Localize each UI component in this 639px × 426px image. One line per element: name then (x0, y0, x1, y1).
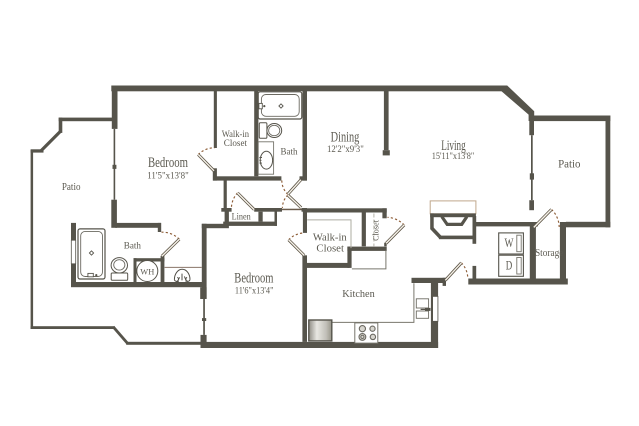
svg-text:11'6"x13'4": 11'6"x13'4" (235, 286, 274, 296)
svg-text:Walk-in: Walk-in (313, 232, 347, 243)
svg-text:15'11"x13'8": 15'11"x13'8" (432, 151, 475, 161)
svg-text:Closet: Closet (370, 220, 380, 241)
svg-text:Closet: Closet (224, 138, 247, 149)
svg-text:12'2"x9'3": 12'2"x9'3" (327, 144, 364, 154)
svg-text:Bedroom: Bedroom (234, 270, 273, 286)
svg-text:Linen: Linen (232, 212, 252, 222)
svg-text:Bath: Bath (281, 146, 298, 156)
svg-text:WH: WH (140, 267, 154, 276)
svg-text:Closet: Closet (316, 244, 344, 255)
svg-text:Bath: Bath (124, 242, 141, 252)
svg-text:11'5"x13'8": 11'5"x13'8" (147, 171, 189, 181)
svg-text:Kitchen: Kitchen (342, 288, 375, 300)
svg-text:Patio: Patio (558, 159, 581, 171)
svg-text:Dining: Dining (331, 129, 360, 145)
svg-text:D: D (506, 257, 513, 272)
svg-text:W: W (505, 235, 515, 250)
svg-text:Patio: Patio (62, 182, 81, 193)
svg-text:Bedroom: Bedroom (148, 155, 188, 171)
svg-text:Storage: Storage (535, 248, 564, 259)
